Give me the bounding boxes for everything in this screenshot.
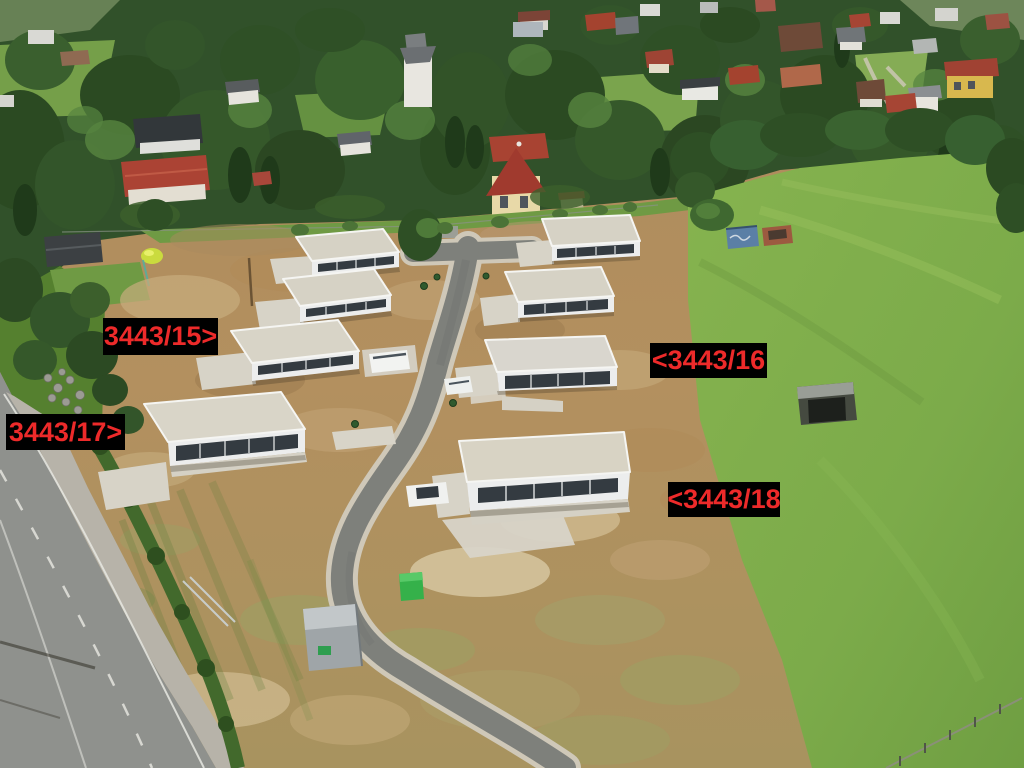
parcel-label-3443-17: 3443/17> bbox=[6, 414, 125, 450]
rusty-car-wreck bbox=[762, 225, 793, 246]
field-shed bbox=[797, 382, 857, 425]
red-roof-house-left bbox=[121, 155, 210, 205]
blue-container bbox=[726, 226, 759, 249]
modern-white-house bbox=[680, 77, 720, 100]
parcel-label-3443-15: 3443/15> bbox=[103, 318, 218, 355]
white-car-on-road bbox=[444, 376, 473, 395]
parcel-label-3443-16: <3443/16 bbox=[650, 343, 767, 378]
brown-roof-house bbox=[856, 79, 886, 107]
portable-toilet bbox=[399, 572, 424, 601]
charcoal-roof-house bbox=[133, 114, 203, 154]
white-van bbox=[369, 350, 410, 373]
aerial-photo: 3443/15> <3443/16 3443/17> <3443/18 bbox=[0, 0, 1024, 768]
house-8 bbox=[432, 432, 630, 525]
parcel-label-3443-18: <3443/18 bbox=[668, 482, 780, 517]
yellow-house-right bbox=[944, 58, 999, 98]
white-car-at-house8 bbox=[406, 482, 449, 507]
site-container bbox=[303, 604, 362, 671]
photo-canvas bbox=[0, 0, 1024, 768]
